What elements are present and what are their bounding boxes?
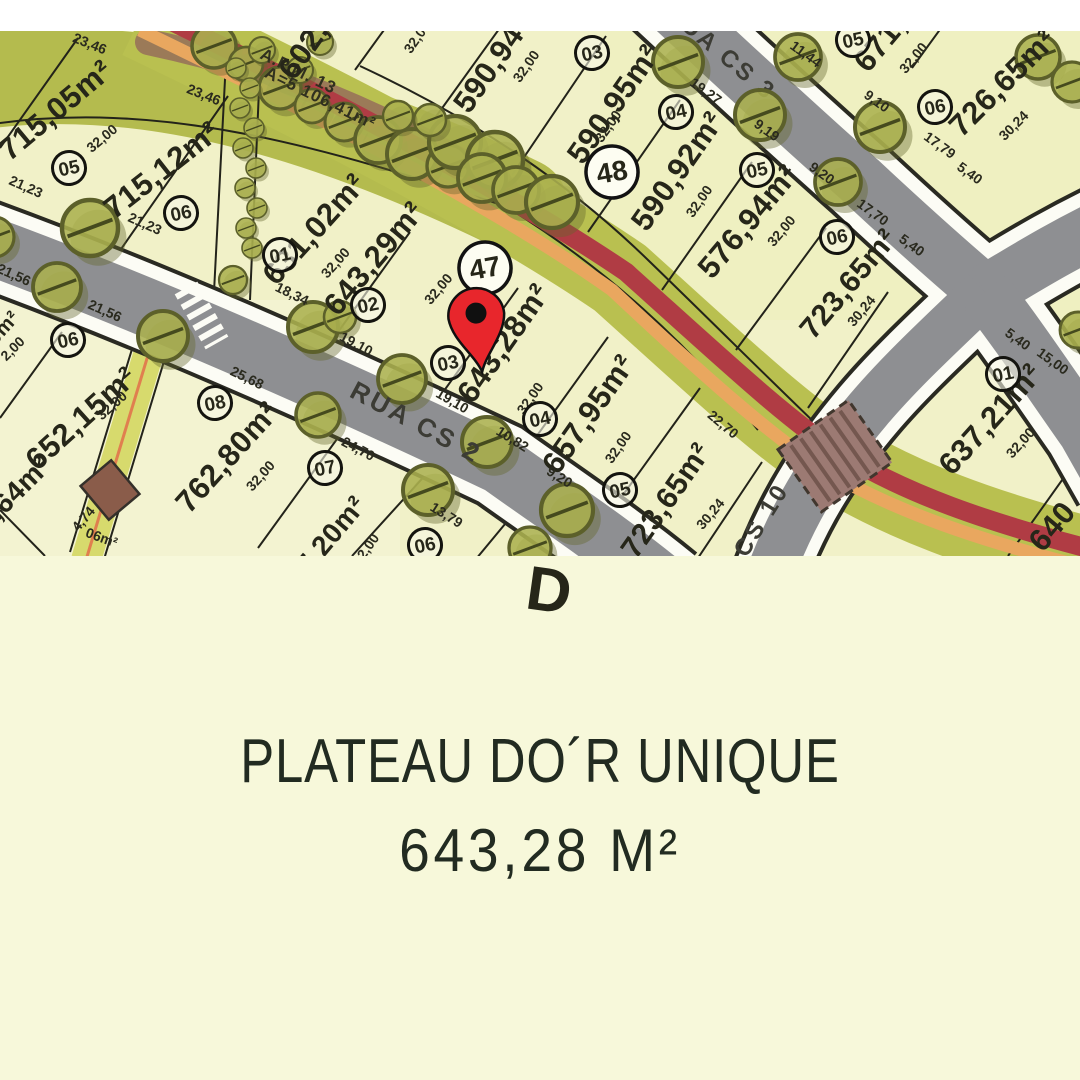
lot-marker-number: 06 [825, 226, 850, 251]
lot-marker-number: 03 [580, 42, 605, 67]
lot-marker-number: 03 [436, 352, 461, 377]
lot-marker-number: 06 [169, 202, 194, 227]
lot-area-value: 643,28 M² [43, 820, 1037, 882]
lot-marker-number: 02 [356, 294, 381, 319]
watermark: D [522, 554, 576, 629]
flyer-graphic: RUA CS 3 [0, 0, 1080, 1080]
lot-marker-number: 06 [923, 96, 948, 121]
top-strip [0, 0, 1080, 31]
lot-marker-number: 06 [413, 534, 438, 559]
block-marker-number: 47 [467, 250, 503, 286]
lot-marker-number: 07 [313, 457, 338, 482]
lot-marker-number: 08 [203, 392, 228, 417]
lot-marker-number: 06 [56, 329, 81, 354]
block-marker-number: 48 [594, 154, 630, 190]
development-name: PLATEAU DO´R UNIQUE [97, 730, 983, 794]
